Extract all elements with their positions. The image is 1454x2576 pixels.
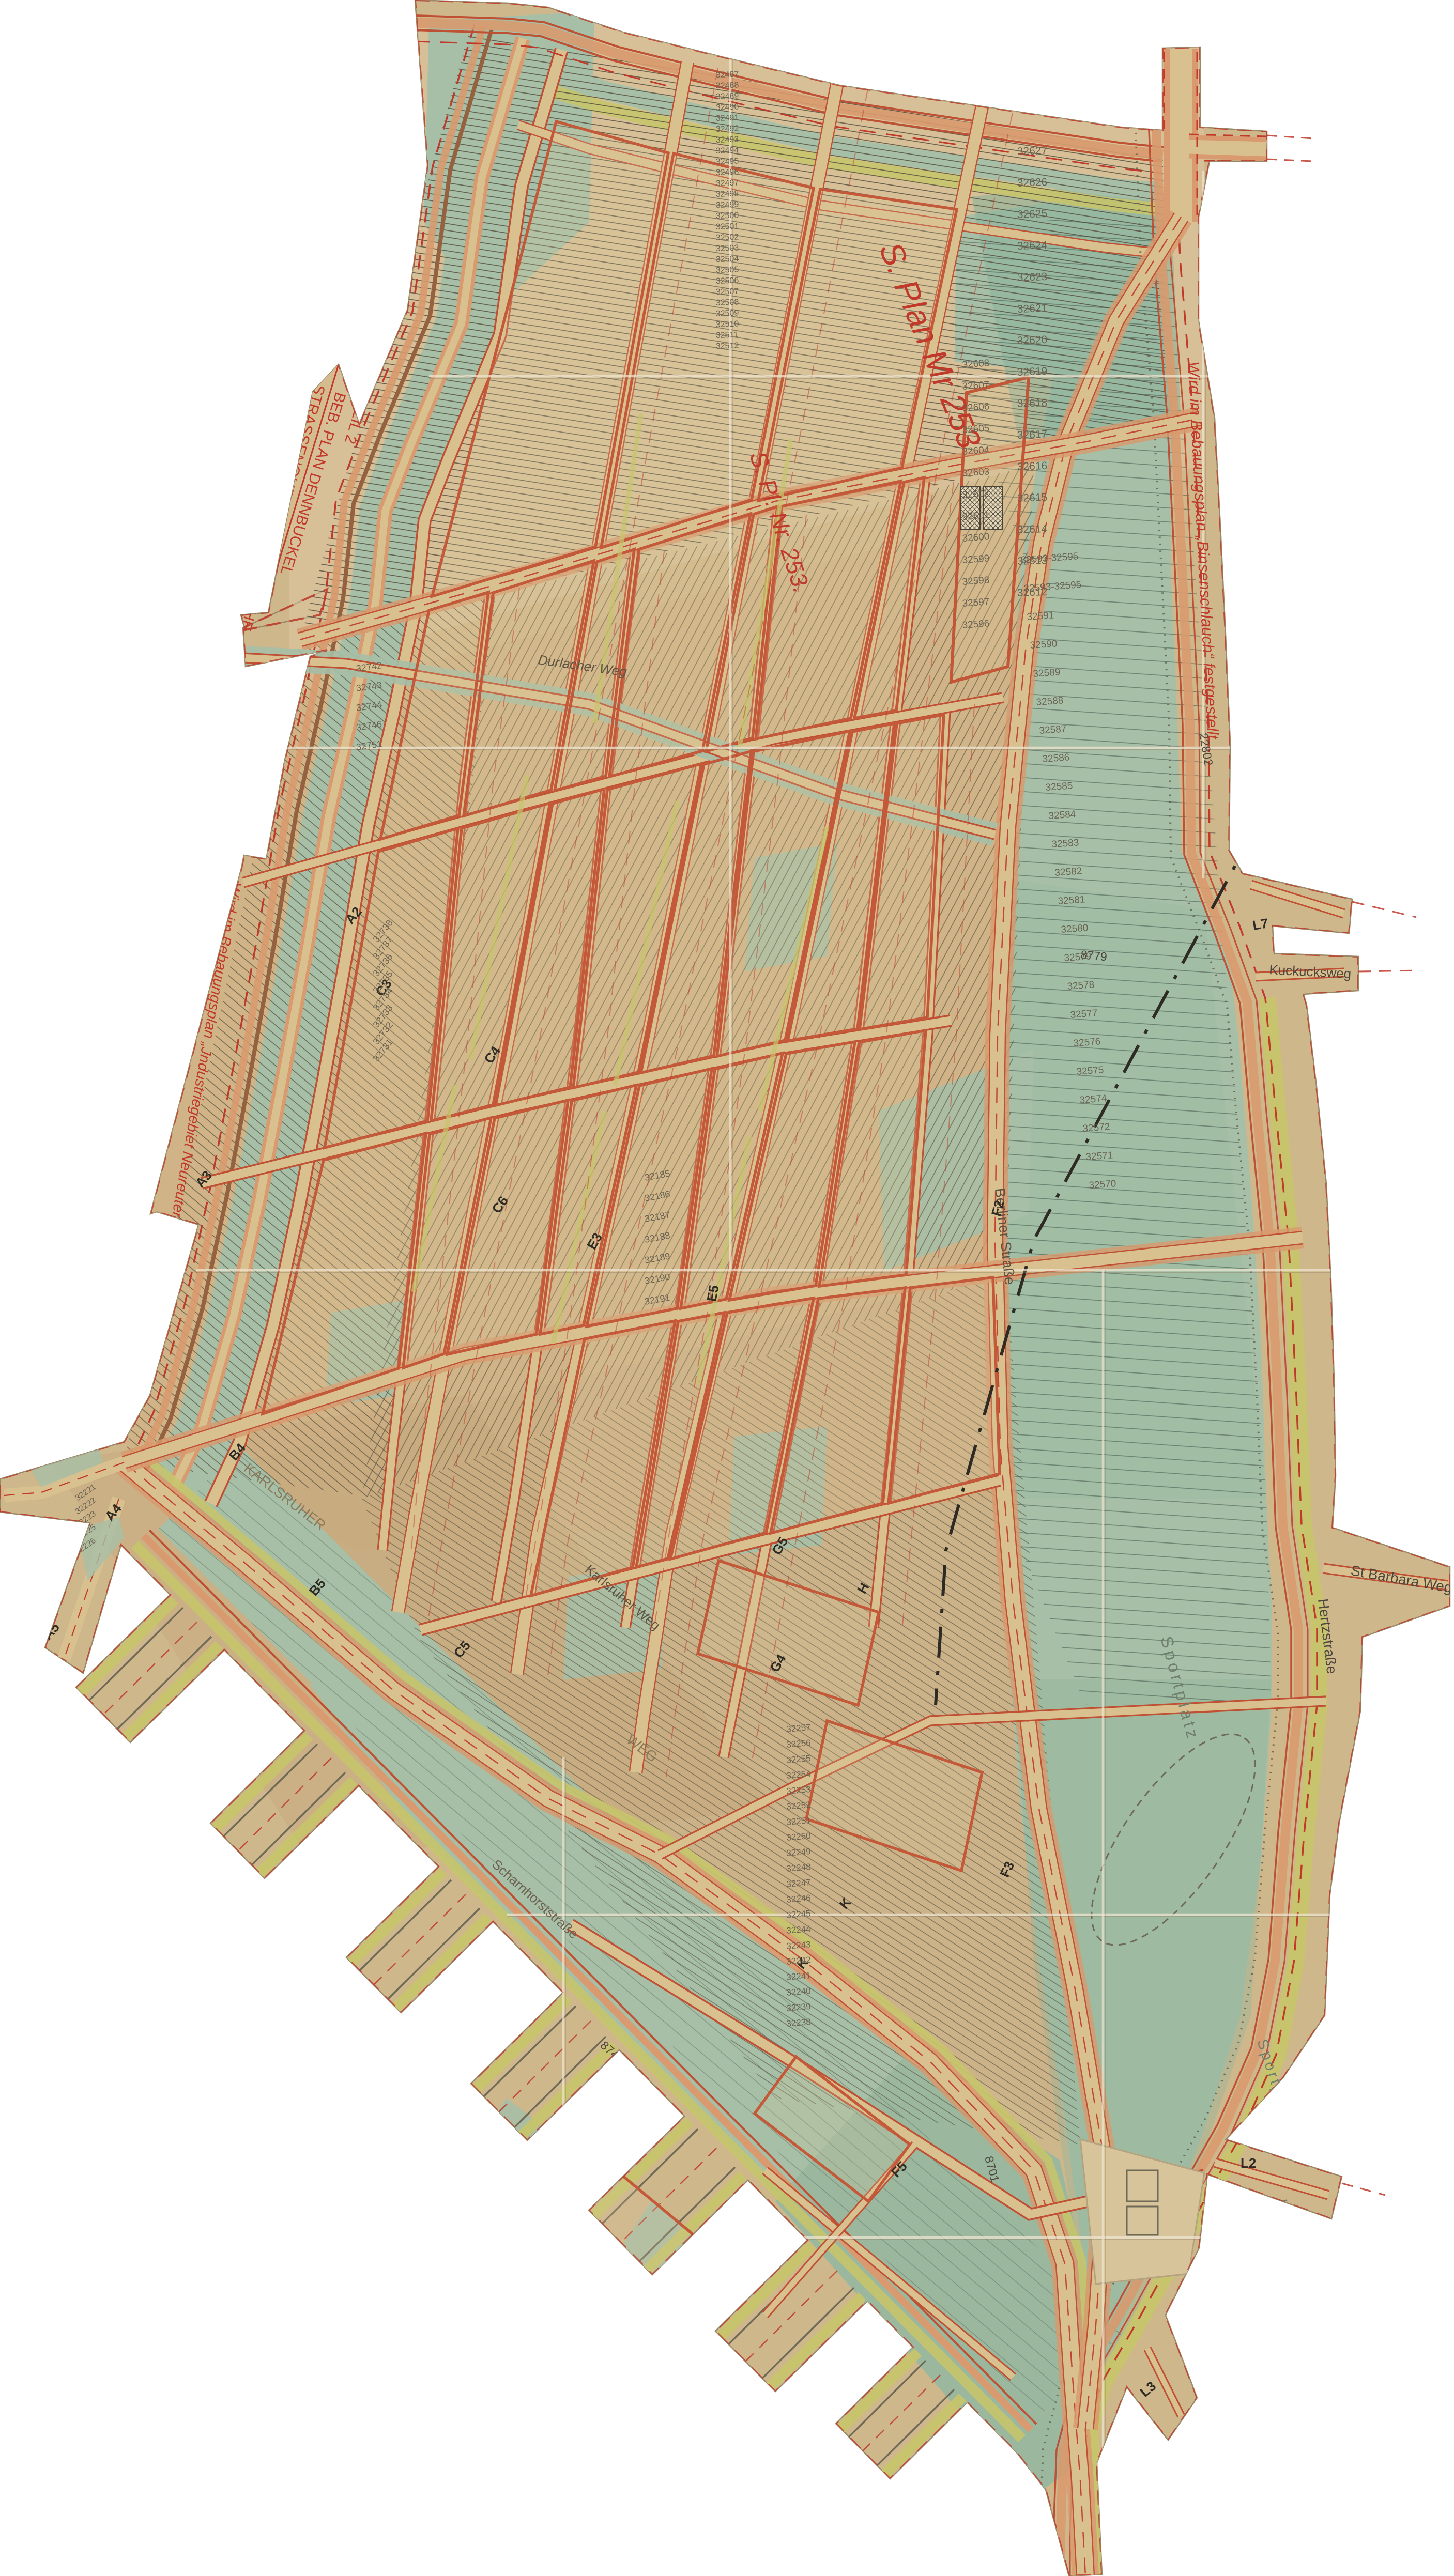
- svg-text:32616: 32616: [1017, 460, 1047, 473]
- svg-text:32505: 32505: [716, 265, 739, 275]
- svg-text:32579: 32579: [1064, 951, 1092, 964]
- svg-text:32501: 32501: [716, 222, 739, 232]
- svg-text:32588: 32588: [1036, 695, 1064, 708]
- svg-text:32599: 32599: [962, 553, 990, 566]
- svg-text:32590: 32590: [1030, 638, 1058, 651]
- svg-text:32597: 32597: [962, 596, 990, 609]
- svg-text:32587: 32587: [1039, 723, 1067, 736]
- svg-text:32619: 32619: [1017, 365, 1047, 378]
- svg-text:32586: 32586: [1042, 752, 1070, 765]
- svg-text:32604: 32604: [962, 444, 990, 457]
- svg-text:32618: 32618: [1017, 397, 1047, 410]
- svg-text:32605: 32605: [962, 423, 990, 436]
- svg-text:32512: 32512: [716, 341, 739, 351]
- svg-text:32506: 32506: [716, 276, 739, 286]
- svg-text:32601: 32601: [962, 510, 990, 522]
- svg-text:32487: 32487: [716, 70, 739, 80]
- svg-text:32572: 32572: [1082, 1121, 1110, 1134]
- svg-text:32575: 32575: [1076, 1065, 1104, 1077]
- svg-text:32488: 32488: [716, 81, 739, 90]
- svg-text:32511: 32511: [716, 330, 739, 340]
- svg-text:32577: 32577: [1070, 1008, 1098, 1021]
- svg-text:L7: L7: [1251, 915, 1269, 933]
- svg-text:32583: 32583: [1051, 837, 1079, 850]
- svg-text:32580: 32580: [1061, 922, 1089, 935]
- svg-text:32624: 32624: [1017, 239, 1047, 252]
- svg-text:32626: 32626: [1017, 176, 1047, 189]
- svg-text:32504: 32504: [716, 254, 739, 264]
- svg-text:32502: 32502: [716, 233, 739, 242]
- svg-text:32490: 32490: [716, 102, 739, 112]
- svg-text:32492: 32492: [716, 124, 739, 134]
- svg-text:32603: 32603: [962, 466, 990, 479]
- svg-text:32489: 32489: [716, 91, 739, 101]
- svg-text:32607: 32607: [962, 379, 990, 392]
- svg-text:32499: 32499: [716, 200, 739, 210]
- svg-text:32491: 32491: [716, 113, 739, 123]
- svg-text:32584: 32584: [1048, 809, 1077, 822]
- svg-text:32576: 32576: [1073, 1036, 1101, 1049]
- svg-text:32493: 32493: [716, 135, 739, 145]
- svg-text:32581: 32581: [1058, 894, 1085, 907]
- svg-text:32627: 32627: [1017, 145, 1047, 158]
- svg-text:32509: 32509: [716, 308, 739, 318]
- svg-text:32614: 32614: [1017, 523, 1047, 536]
- svg-text:32497: 32497: [716, 178, 739, 188]
- svg-text:E5: E5: [703, 1284, 722, 1303]
- svg-text:32596: 32596: [962, 618, 990, 631]
- svg-text:32582: 32582: [1054, 866, 1082, 878]
- svg-text:32589: 32589: [1033, 667, 1061, 680]
- svg-text:32500: 32500: [716, 211, 739, 221]
- svg-text:32591: 32591: [1027, 610, 1054, 623]
- svg-text:32617: 32617: [1017, 428, 1047, 441]
- svg-text:32498: 32498: [716, 189, 739, 199]
- svg-text:32600: 32600: [962, 531, 990, 544]
- svg-text:32570: 32570: [1089, 1178, 1116, 1191]
- svg-text:32508: 32508: [716, 298, 739, 307]
- svg-text:32510: 32510: [716, 319, 739, 329]
- svg-text:32585: 32585: [1045, 780, 1073, 793]
- svg-text:32625: 32625: [1017, 208, 1047, 221]
- svg-text:32495: 32495: [716, 157, 739, 166]
- svg-text:32620: 32620: [1017, 334, 1047, 347]
- svg-text:32507: 32507: [716, 287, 739, 297]
- svg-text:32571: 32571: [1085, 1150, 1113, 1163]
- svg-text:32598: 32598: [962, 575, 990, 588]
- svg-text:32578: 32578: [1067, 979, 1095, 992]
- svg-text:32496: 32496: [716, 167, 739, 177]
- svg-text:32621: 32621: [1017, 302, 1047, 315]
- svg-text:32623: 32623: [1017, 271, 1047, 284]
- svg-text:32503: 32503: [716, 243, 739, 253]
- svg-text:32615: 32615: [1017, 491, 1047, 504]
- svg-text:32494: 32494: [716, 146, 739, 156]
- svg-text:32602: 32602: [962, 488, 990, 501]
- svg-text:32608: 32608: [962, 358, 990, 371]
- svg-text:32574: 32574: [1079, 1093, 1108, 1106]
- svg-text:L2: L2: [1241, 2155, 1256, 2171]
- svg-text:32606: 32606: [962, 401, 990, 414]
